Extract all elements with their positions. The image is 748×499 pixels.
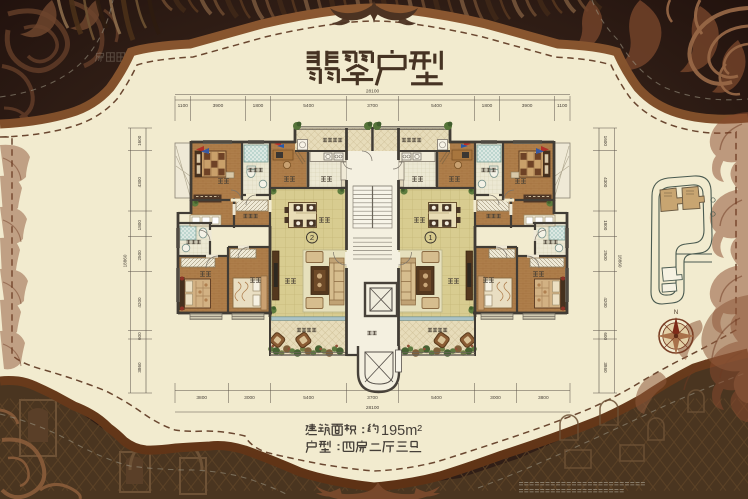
svg-text:3900: 3900 (522, 103, 533, 109)
svg-text:1800: 1800 (482, 103, 493, 109)
svg-text:4200: 4200 (603, 297, 608, 308)
svg-text:2: 2 (310, 233, 314, 242)
svg-text:28100: 28100 (366, 405, 380, 411)
svg-text:4300: 4300 (603, 177, 608, 188)
svg-text:1600: 1600 (603, 136, 608, 147)
svg-text:1100: 1100 (557, 103, 568, 109)
svg-text:2500: 2500 (603, 250, 608, 261)
svg-text:4300: 4300 (137, 177, 142, 188)
svg-text:3700: 3700 (367, 395, 378, 401)
svg-text:5400: 5400 (303, 395, 314, 401)
svg-text:600: 600 (603, 332, 608, 340)
svg-text:3700: 3700 (367, 103, 378, 109)
svg-text:18860: 18860 (618, 255, 623, 268)
svg-text:3860: 3860 (603, 362, 608, 373)
svg-text:1800: 1800 (253, 103, 264, 109)
svg-text:3000: 3000 (244, 395, 255, 401)
svg-text:3800: 3800 (538, 395, 549, 401)
svg-text:195m²: 195m² (381, 423, 422, 439)
svg-text:3000: 3000 (490, 395, 501, 401)
svg-text:3800: 3800 (196, 395, 207, 401)
svg-text:N: N (674, 309, 678, 316)
svg-text:5400: 5400 (431, 395, 442, 401)
svg-text:3900: 3900 (213, 103, 224, 109)
svg-text:5400: 5400 (431, 103, 442, 109)
svg-text:28100: 28100 (366, 89, 380, 95)
svg-text:1100: 1100 (178, 103, 189, 109)
svg-text:4200: 4200 (137, 297, 142, 308)
svg-text:600: 600 (137, 332, 142, 340)
svg-text:3860: 3860 (137, 362, 142, 373)
svg-text:1800: 1800 (603, 220, 608, 231)
svg-text:5400: 5400 (303, 103, 314, 109)
svg-text:18860: 18860 (123, 254, 128, 267)
svg-text:1800: 1800 (137, 220, 142, 231)
svg-text:2500: 2500 (137, 250, 142, 261)
svg-text:1600: 1600 (137, 135, 142, 146)
svg-text:1: 1 (428, 233, 432, 242)
